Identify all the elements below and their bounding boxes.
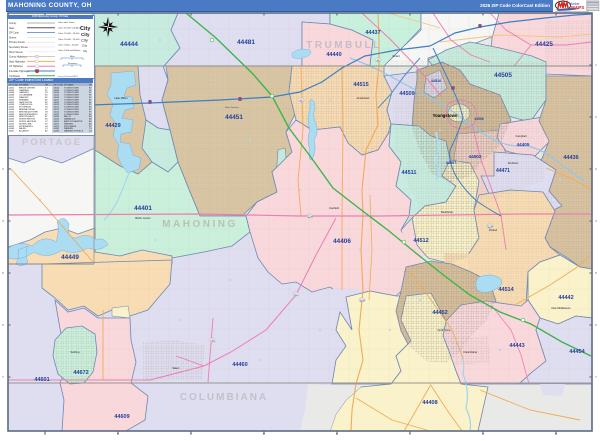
svg-text:City: City <box>81 37 88 42</box>
svg-text:44609: 44609 <box>114 414 129 420</box>
svg-text:44425: 44425 <box>535 41 553 48</box>
svg-text:44444: 44444 <box>120 41 138 48</box>
svg-text:ZIP NAME: ZIP NAME <box>19 83 29 86</box>
svg-text:Kilometers: Kilometers <box>68 62 77 65</box>
svg-text:44442: 44442 <box>558 295 573 301</box>
svg-text:3: 3 <box>2 167 4 171</box>
svg-text:US Highways: US Highways <box>9 66 24 68</box>
svg-text:Interstate Highways: Interstate Highways <box>9 70 30 73</box>
svg-text:County Highways: County Highways <box>9 56 28 59</box>
svg-text:City: City <box>81 32 90 37</box>
svg-text:2: 2 <box>595 115 597 119</box>
svg-text:44449: 44449 <box>61 254 79 261</box>
svg-text:City: City <box>83 50 88 53</box>
svg-text:Poland: Poland <box>489 228 498 232</box>
svg-text:Cities 50,000 and Above: Cities 50,000 and Above <box>58 27 82 30</box>
svg-text:44490: 44490 <box>54 131 60 133</box>
svg-text:Columbiana: Columbiana <box>463 350 477 354</box>
svg-text:5: 5 <box>2 271 4 275</box>
svg-text:5: 5 <box>595 271 597 275</box>
svg-text:Streets: Streets <box>9 36 17 39</box>
svg-text:TRUMBULL: TRUMBULL <box>306 40 382 51</box>
svg-text:Cities 5,000 and Below: Cities 5,000 and Below <box>58 49 81 52</box>
svg-text:1: 1 <box>595 63 597 67</box>
svg-text:45: 45 <box>211 338 215 342</box>
svg-text:44510: 44510 <box>431 79 442 83</box>
svg-text:44507: 44507 <box>446 161 457 165</box>
svg-text:44454: 44454 <box>569 349 585 355</box>
svg-text:6: 6 <box>2 323 4 327</box>
svg-text:Cities with Towns: Cities with Towns <box>58 21 76 24</box>
svg-text:Salem: Salem <box>172 366 179 370</box>
svg-text:Campbell: Campbell <box>516 134 527 138</box>
svg-text:MAHONING: MAHONING <box>162 219 238 230</box>
svg-text:44514: 44514 <box>498 287 514 293</box>
svg-text:44406: 44406 <box>333 238 351 245</box>
svg-text:ZIP NAME: ZIP NAME <box>64 83 74 86</box>
svg-text:164: 164 <box>359 298 364 302</box>
svg-text:44601: 44601 <box>34 377 49 383</box>
svg-text:4: 4 <box>595 219 597 223</box>
svg-text:County: County <box>9 22 17 25</box>
svg-text:Canfield: Canfield <box>329 206 339 210</box>
svg-text:Minor Streets: Minor Streets <box>9 51 24 54</box>
svg-text:44505: 44505 <box>494 72 512 79</box>
svg-text:WASHINGTONVILLE: WASHINGTONVILLE <box>64 130 84 133</box>
svg-text:Austintown: Austintown <box>357 96 370 100</box>
svg-text:New Middletown: New Middletown <box>551 306 571 310</box>
svg-text:62: 62 <box>294 292 298 296</box>
svg-text:Lake Milton: Lake Milton <box>114 96 128 100</box>
svg-text:City: City <box>82 44 88 48</box>
svg-text:4: 4 <box>2 219 4 223</box>
svg-text:Cities 10,000 - 25,000: Cities 10,000 - 25,000 <box>58 38 80 41</box>
svg-text:ZIP CODE: ZIP CODE <box>9 84 19 86</box>
svg-text:44429: 44429 <box>105 123 120 129</box>
svg-text:Primary Streets: Primary Streets <box>9 41 26 44</box>
svg-text:44460: 44460 <box>232 362 247 368</box>
svg-text:45: 45 <box>299 98 303 102</box>
svg-text:44452: 44452 <box>432 310 447 316</box>
svg-text:North Jackson: North Jackson <box>225 106 240 109</box>
svg-text:D: D <box>263 432 266 436</box>
svg-text:44436: 44436 <box>563 155 578 161</box>
svg-text:44481: 44481 <box>237 39 255 46</box>
svg-text:State: State <box>9 27 15 30</box>
svg-text:44405: 44405 <box>517 142 530 147</box>
svg-text:7: 7 <box>595 375 597 379</box>
svg-text:Boardman: Boardman <box>441 210 454 214</box>
svg-text:Secondary Streets: Secondary Streets <box>9 46 29 49</box>
svg-text:A3: A3 <box>45 130 48 133</box>
svg-text:44401: 44401 <box>134 205 152 212</box>
svg-text:44511: 44511 <box>402 170 417 176</box>
svg-text:C: C <box>190 432 193 436</box>
svg-text:Cities 25,000 - 50,000: Cities 25,000 - 50,000 <box>58 32 80 35</box>
svg-text:Cities 5,000 - 10,000: Cities 5,000 - 10,000 <box>58 43 79 46</box>
svg-text:44471: 44471 <box>496 168 510 174</box>
svg-text:46: 46 <box>376 58 380 62</box>
svg-text:Youngstown: Youngstown <box>433 113 458 118</box>
svg-text:44601: 44601 <box>9 131 15 133</box>
svg-text:North Lima: North Lima <box>438 328 451 332</box>
svg-text:Berlin Center: Berlin Center <box>135 216 150 220</box>
svg-text:44408: 44408 <box>422 400 437 406</box>
svg-text:44506: 44506 <box>474 117 483 121</box>
svg-text:44502: 44502 <box>469 154 482 159</box>
svg-text:MAPS: MAPS <box>571 5 584 10</box>
svg-text:44509: 44509 <box>399 91 414 97</box>
svg-text:224: 224 <box>307 214 312 218</box>
svg-text:ZIP CODE: ZIP CODE <box>54 84 64 86</box>
svg-text:Sebring: Sebring <box>71 350 80 354</box>
svg-text:State Highways: State Highways <box>9 60 26 63</box>
svg-text:PORTAGE: PORTAGE <box>22 137 82 148</box>
svg-text:44443: 44443 <box>509 343 524 349</box>
svg-text:7: 7 <box>2 375 4 379</box>
svg-text:ZIP Code: ZIP Code <box>9 33 19 35</box>
svg-text:COLUMBIANA: COLUMBIANA <box>180 392 268 403</box>
svg-text:Girard: Girard <box>392 54 400 58</box>
svg-text:44437: 44437 <box>365 30 380 36</box>
svg-text:44512: 44512 <box>413 238 428 244</box>
svg-text:Struthers: Struthers <box>508 161 519 165</box>
svg-text:44515: 44515 <box>353 82 368 88</box>
svg-text:44440: 44440 <box>326 52 341 58</box>
svg-text:ALLIANCE: ALLIANCE <box>19 130 29 133</box>
svg-text:224: 224 <box>487 224 492 228</box>
svg-text:Miles: Miles <box>70 56 75 58</box>
svg-text:44672: 44672 <box>73 370 88 376</box>
svg-text:3: 3 <box>595 167 597 171</box>
svg-text:44451: 44451 <box>225 114 243 121</box>
svg-text:6: 6 <box>595 323 597 327</box>
